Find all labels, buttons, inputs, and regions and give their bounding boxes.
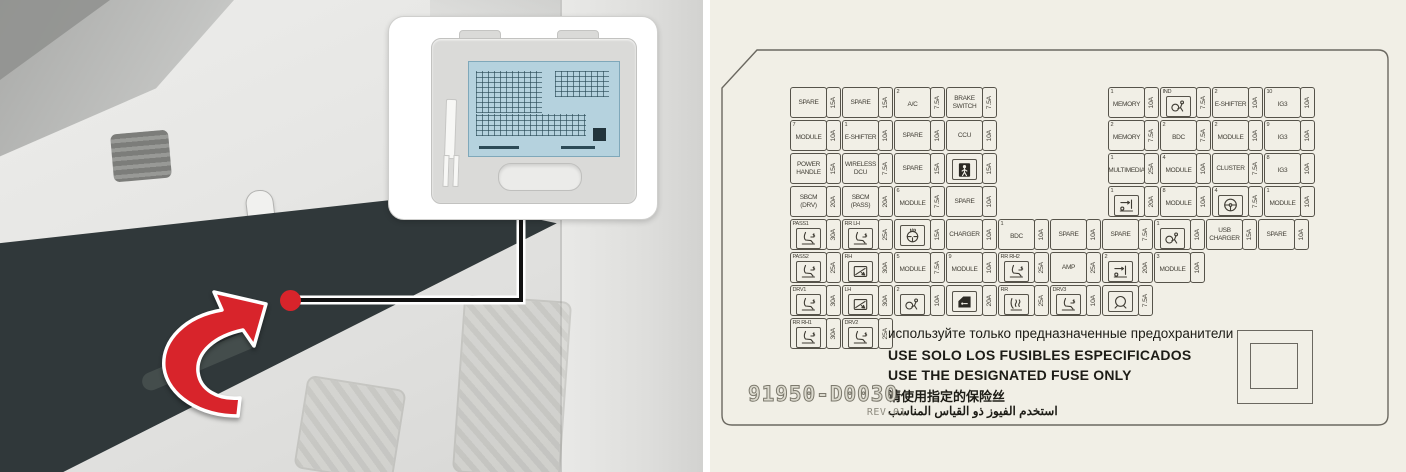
- fuse-amp-rating: 10A: [982, 186, 997, 217]
- fuse-row-segment: 120A8MODULE10A47.5A1MODULE10A: [1108, 186, 1316, 217]
- fuse-amp-rating: 20A: [1144, 186, 1159, 217]
- fuse-function-label: SPARE: [790, 87, 827, 118]
- fuse-function-label: 1MULTIMEDIA: [1108, 153, 1145, 184]
- fuse-amp-rating: 10A: [1086, 219, 1101, 250]
- fuse-index-label: PASS1: [793, 221, 809, 227]
- fuse-index-label: 1: [1267, 188, 1270, 194]
- fuse-function-label: USB CHARGER: [1206, 219, 1243, 250]
- fuse-cell: 15A: [946, 153, 997, 184]
- fuse-function-icon-cell: RR RH1: [790, 318, 827, 349]
- fuse-row-segment: 1MULTIMEDIA25A4MODULE10ACLUSTER7.5A8IG31…: [1108, 153, 1316, 184]
- fuse-puller-fork: [442, 155, 449, 187]
- fuse-index-label: 1: [1001, 221, 1004, 227]
- fuse-index-label: RR RH2: [1001, 254, 1020, 260]
- fuse-function-label: SBCM (DRV): [790, 186, 827, 217]
- fuse-cell: 2BDC7.5A: [1160, 120, 1211, 151]
- airbag-icon: [1160, 228, 1185, 249]
- fuse-function-label: 6MODULE: [894, 186, 931, 217]
- fuse-function-text: MODULE: [1159, 266, 1185, 273]
- fuse-function-icon-cell: [1102, 285, 1139, 316]
- fuse-amp-rating: 30A: [878, 252, 893, 283]
- fuse-cell: 4MODULE10A: [1160, 153, 1211, 184]
- fuse-function-text: BRAKE SWITCH: [948, 95, 981, 110]
- warning-russian: используйте только предназначенные предо…: [888, 326, 1233, 341]
- fuse-cell: 9IG310A: [1264, 120, 1315, 151]
- fuse-function-label: 2E-SHIFTER: [1212, 87, 1249, 118]
- power-seat-icon: [848, 228, 873, 249]
- fuse-cell: CCU10A: [946, 120, 997, 151]
- fuse-function-text: BDC: [1010, 233, 1023, 240]
- fuse-cell: 1BDC10A: [998, 219, 1049, 250]
- fuse-puller-fork: [452, 155, 459, 187]
- fuse-cell: 5MODULE7.5A: [894, 252, 945, 283]
- fuse-function-label: POWER HANDLE: [790, 153, 827, 184]
- mini-grid-right: [555, 71, 609, 97]
- fuse-function-text: SBCM (PASS): [844, 194, 877, 209]
- fuse-cell: SPARE15A: [790, 87, 841, 118]
- heated-seat-icon: [1004, 294, 1029, 315]
- fuse-cell: IND7.5A: [1160, 87, 1211, 118]
- fuse-cover-image: [431, 38, 637, 204]
- fuse-function-label: CLUSTER: [1212, 153, 1249, 184]
- passenger-airbag-icon: [952, 159, 977, 180]
- power-seat-icon: [848, 327, 873, 348]
- fuse-function-text: MODULE: [1269, 200, 1295, 207]
- fuse-amp-rating: 10A: [1248, 120, 1263, 151]
- fuse-cell: SBCM (PASS)20A: [842, 186, 893, 217]
- fuse-function-label: CHARGER: [946, 219, 983, 250]
- fuse-label-panel: SPARE15ASPARE15A2A/C7.5ABRAKE SWITCH7.5A…: [710, 0, 1406, 472]
- fuse-row-segment: 1MEMORY10AIND7.5A2E-SHIFTER10A10IG310A: [1108, 87, 1316, 118]
- fuse-amp-rating: 15A: [982, 153, 997, 184]
- fuse-cell: 3MODULE10A: [1154, 252, 1205, 283]
- fuse-function-text: CLUSTER: [1216, 165, 1244, 172]
- fuse-index-label: RR LH: [845, 221, 860, 227]
- fuse-amp-rating: 30A: [826, 219, 841, 250]
- fuse-amp-rating: 10A: [982, 252, 997, 283]
- fuse-amp-rating: 15A: [1242, 219, 1257, 250]
- fuse-function-text: IG3: [1278, 101, 1288, 108]
- fuse-function-icon-cell: LH: [842, 285, 879, 316]
- fuse-function-icon-cell: DRV2: [842, 318, 879, 349]
- fuse-cell: DRV130A: [790, 285, 841, 316]
- fuse-cell: WIRELESS DCU7.5A: [842, 153, 893, 184]
- fuse-row-segment: PASS225ARH30A5MODULE7.5A9MODULE10ARR RH2…: [790, 252, 1206, 283]
- door-lock-icon: [952, 291, 977, 312]
- fuse-row-segment: POWER HANDLE15AWIRELESS DCU7.5ASPARE15A1…: [790, 153, 998, 184]
- fuse-cell: 15A: [894, 219, 945, 250]
- fuse-function-label: 3MODULE: [1154, 252, 1191, 283]
- fuse-index-label: 2: [1163, 122, 1166, 128]
- fuse-function-icon-cell: [946, 285, 983, 316]
- fuse-amp-rating: 10A: [1034, 219, 1049, 250]
- fuse-amp-rating: 7.5A: [1144, 120, 1159, 151]
- power-seat-icon: [1004, 261, 1029, 282]
- fuse-function-icon-cell: 1: [1154, 219, 1191, 250]
- fuse-index-label: DRV2: [845, 320, 859, 326]
- fuse-amp-rating: 25A: [1086, 252, 1101, 283]
- fuse-cell: RR RH130A: [790, 318, 841, 349]
- fuse-function-label: SPARE: [842, 87, 879, 118]
- fuse-cell: RR LH25A: [842, 219, 893, 250]
- fuse-function-label: 8MODULE: [1160, 186, 1197, 217]
- fuse-index-label: 5: [897, 254, 900, 260]
- fuse-function-text: MODULE: [1217, 134, 1243, 141]
- fuse-cell: 7MODULE10A: [790, 120, 841, 151]
- fuse-function-icon-cell: 2: [1102, 252, 1139, 283]
- fuse-cell: SPARE15A: [894, 153, 945, 184]
- fuse-function-label: 7MODULE: [790, 120, 827, 151]
- fuse-function-icon-cell: [894, 219, 931, 250]
- fuse-amp-rating: 25A: [878, 219, 893, 250]
- fuse-function-label: 9MODULE: [946, 252, 983, 283]
- fuse-amp-rating: 15A: [826, 87, 841, 118]
- fuse-function-text: SPARE: [954, 198, 974, 205]
- fuse-function-label: SPARE: [1102, 219, 1139, 250]
- fuse-function-text: CHARGER: [949, 231, 979, 238]
- fuse-amp-rating: 10A: [1144, 87, 1159, 118]
- fuse-amp-rating: 7.5A: [930, 87, 945, 118]
- fuse-cell: PASS225A: [790, 252, 841, 283]
- fuse-cell: 8MODULE10A: [1160, 186, 1211, 217]
- fuse-function-icon-cell: DRV3: [1050, 285, 1087, 316]
- fuse-amp-rating: 10A: [930, 120, 945, 151]
- fuse-function-label: SPARE: [894, 120, 931, 151]
- fuse-function-label: BRAKE SWITCH: [946, 87, 983, 118]
- fuse-function-text: MODULE: [951, 266, 977, 273]
- fuse-amp-rating: 7.5A: [930, 186, 945, 217]
- mini-grid-bottom: [476, 114, 586, 136]
- fuse-cell: RR25A: [998, 285, 1049, 316]
- fuse-index-label: 9: [1267, 122, 1270, 128]
- part-number: 91950-D0030: [748, 382, 898, 406]
- fuse-function-text: SPARE: [1110, 231, 1130, 238]
- fuse-index-label: DRV1: [793, 287, 807, 293]
- fuse-cell: 6MODULE7.5A: [894, 186, 945, 217]
- fuse-amp-rating: 10A: [930, 285, 945, 316]
- fuse-function-label: 2BDC: [1160, 120, 1197, 151]
- fuse-index-label: 6: [897, 188, 900, 194]
- fuse-function-text: MEMORY: [1113, 134, 1140, 141]
- fuse-function-text: SPARE: [902, 165, 922, 172]
- fuse-function-text: USB CHARGER: [1208, 227, 1241, 242]
- cover-handle-slot: [498, 163, 582, 191]
- fuse-row-segment: 7MODULE10A1E-SHIFTER10ASPARE10ACCU10A: [790, 120, 998, 151]
- fuse-function-text: POWER HANDLE: [792, 161, 825, 176]
- fuse-cell: CLUSTER7.5A: [1212, 153, 1263, 184]
- fuse-amp-rating: 20A: [878, 186, 893, 217]
- fuse-amp-rating: 20A: [826, 186, 841, 217]
- fuse-cell: 1E-SHIFTER10A: [842, 120, 893, 151]
- fuse-cell: SPARE10A: [946, 186, 997, 217]
- fuse-index-label: DRV3: [1053, 287, 1067, 293]
- fuse-cell: 10IG310A: [1264, 87, 1315, 118]
- fuse-amp-rating: 10A: [1190, 252, 1205, 283]
- fuse-amp-rating: 7.5A: [930, 252, 945, 283]
- fuse-row-segment: PASS130ARR LH25A15ACHARGER10A1BDC10ASPAR…: [790, 219, 1310, 250]
- fuse-function-icon-cell: 1: [1108, 186, 1145, 217]
- fuse-function-text: MEMORY: [1113, 101, 1140, 108]
- fuse-amp-rating: 25A: [1034, 285, 1049, 316]
- fuse-cell: SPARE10A: [1258, 219, 1309, 250]
- fuse-function-text: SBCM (DRV): [792, 194, 825, 209]
- fuse-index-label: IND: [1163, 89, 1172, 95]
- steering-wheel-icon: [1218, 195, 1243, 216]
- fuse-index-label: 9: [949, 254, 952, 260]
- fuse-cell: 2A/C7.5A: [894, 87, 945, 118]
- corner-square-inner: [1250, 343, 1298, 389]
- fuse-cell: 1MODULE10A: [1264, 186, 1315, 217]
- fuse-amp-rating: 10A: [982, 219, 997, 250]
- fuse-cell: 2MEMORY7.5A: [1108, 120, 1159, 151]
- warning-english: USE THE DESIGNATED FUSE ONLY: [888, 367, 1132, 383]
- fuse-function-label: CCU: [946, 120, 983, 151]
- fuse-function-text: MODULE: [1165, 200, 1191, 207]
- fuse-amp-rating: 25A: [1034, 252, 1049, 283]
- fuse-amp-rating: 7.5A: [1248, 186, 1263, 217]
- fuse-function-label: 1MODULE: [1264, 186, 1301, 217]
- fuse-amp-rating: 10A: [982, 120, 997, 151]
- mini-grid-left: [476, 71, 542, 113]
- fuse-function-text: CCU: [958, 132, 971, 139]
- fuse-function-label: SBCM (PASS): [842, 186, 879, 217]
- fuse-row-segment: 2MEMORY7.5A2BDC7.5A2MODULE10A9IG310A: [1108, 120, 1316, 151]
- fuse-function-text: SPARE: [902, 132, 922, 139]
- fuse-cell: CHARGER10A: [946, 219, 997, 250]
- mini-text-dash: [479, 146, 519, 149]
- fuse-cell: SPARE10A: [894, 120, 945, 151]
- airbag-icon: [1166, 96, 1191, 117]
- fuse-function-label: SPARE: [1050, 219, 1087, 250]
- fuse-index-label: 8: [1267, 155, 1270, 161]
- fuse-amp-rating: 15A: [930, 219, 945, 250]
- manual-page: { "colors":{"accent_red":"#d8242b","pane…: [0, 0, 1406, 472]
- fuse-function-icon-cell: [946, 153, 983, 184]
- seat-slide-icon: [1114, 195, 1139, 216]
- power-window-icon: [848, 261, 873, 282]
- revision-label: REV.01: [818, 407, 906, 418]
- fuse-cell: 1MULTIMEDIA25A: [1108, 153, 1159, 184]
- fuse-cell: SPARE7.5A: [1102, 219, 1153, 250]
- fuse-function-text: IG3: [1278, 167, 1288, 174]
- fuse-index-label: 3: [1157, 254, 1160, 260]
- fuse-function-text: MODULE: [899, 266, 925, 273]
- fuse-function-text: SPARE: [1058, 231, 1078, 238]
- fuse-index-label: RR: [1001, 287, 1008, 293]
- fuse-function-label: 1BDC: [998, 219, 1035, 250]
- fuse-cell: RR RH225A: [998, 252, 1049, 283]
- interior-photo: [0, 0, 703, 472]
- fuse-index-label: 2: [897, 89, 900, 95]
- fuse-cell: 2E-SHIFTER10A: [1212, 87, 1263, 118]
- fuse-function-text: SPARE: [850, 99, 870, 106]
- fuse-amp-rating: 10A: [826, 120, 841, 151]
- fuse-row-segment: DRV130ALH30A210A20ARR25ADRV310A7.5A: [790, 285, 1154, 316]
- fuse-amp-rating: 10A: [1300, 186, 1315, 217]
- fuse-index-label: 8: [1163, 188, 1166, 194]
- fuse-amp-rating: 7.5A: [982, 87, 997, 118]
- fuse-amp-rating: 25A: [1144, 153, 1159, 184]
- fuse-cell: BRAKE SWITCH7.5A: [946, 87, 997, 118]
- fuse-function-icon-cell: RR: [998, 285, 1035, 316]
- fuse-amp-rating: 10A: [878, 120, 893, 151]
- fuse-function-label: SPARE: [894, 153, 931, 184]
- fuse-function-text: BDC: [1172, 134, 1185, 141]
- fuse-function-icon-cell: 4: [1212, 186, 1249, 217]
- fuse-index-label: 1: [1111, 89, 1114, 95]
- callout-box: [388, 16, 658, 220]
- fuse-cell: USB CHARGER15A: [1206, 219, 1257, 250]
- fuse-function-label: 10IG3: [1264, 87, 1301, 118]
- power-seat-icon: [796, 327, 821, 348]
- fuse-function-text: MODULE: [899, 200, 925, 207]
- fuse-cell: LH30A: [842, 285, 893, 316]
- fuse-index-label: 1: [1111, 155, 1114, 161]
- fuse-function-text: IG3: [1278, 134, 1288, 141]
- fuse-cell: 2MODULE10A: [1212, 120, 1263, 151]
- fuse-function-icon-cell: IND: [1160, 87, 1197, 118]
- fuse-function-label: 1MEMORY: [1108, 87, 1145, 118]
- fuse-cell: DRV310A: [1050, 285, 1101, 316]
- warning-spanish: USE SOLO LOS FUSIBLES ESPECIFICADOS: [888, 347, 1191, 363]
- fuse-function-icon-cell: PASS1: [790, 219, 827, 250]
- fuse-index-label: 2: [1105, 254, 1108, 260]
- fuse-cell: SPARE10A: [1050, 219, 1101, 250]
- fuse-function-icon-cell: PASS2: [790, 252, 827, 283]
- fuse-amp-rating: 7.5A: [1196, 87, 1211, 118]
- fuse-function-text: MODULE: [795, 134, 821, 141]
- fuse-amp-rating: 10A: [1086, 285, 1101, 316]
- fuse-function-label: 4MODULE: [1160, 153, 1197, 184]
- power-window-icon: [848, 294, 873, 315]
- fuse-function-label: 2A/C: [894, 87, 931, 118]
- fuse-amp-rating: 15A: [826, 153, 841, 184]
- fuse-cell: DRV225A: [842, 318, 893, 349]
- fuse-amp-rating: 7.5A: [1138, 219, 1153, 250]
- fuse-cell: 210A: [894, 285, 945, 316]
- fuse-amp-rating: 10A: [1294, 219, 1309, 250]
- fuse-amp-rating: 10A: [1196, 186, 1211, 217]
- fuse-cell: 120A: [1108, 186, 1159, 217]
- power-seat-icon: [796, 261, 821, 282]
- fuse-cell: PASS130A: [790, 219, 841, 250]
- fuse-amp-rating: 10A: [1300, 87, 1315, 118]
- fuse-amp-rating: 7.5A: [1138, 285, 1153, 316]
- power-seat-icon: [1056, 294, 1081, 315]
- fuse-cell: RH30A: [842, 252, 893, 283]
- fuse-function-icon-cell: 2: [894, 285, 931, 316]
- fuse-cell: AMP25A: [1050, 252, 1101, 283]
- fuse-cell: 8IG310A: [1264, 153, 1315, 184]
- fuse-row-segment: SBCM (DRV)20ASBCM (PASS)20A6MODULE7.5ASP…: [790, 186, 998, 217]
- fuse-function-text: MULTIMEDIA: [1108, 167, 1145, 174]
- fuse-index-label: 2: [1215, 89, 1218, 95]
- fuse-row-segment: SPARE15ASPARE15A2A/C7.5ABRAKE SWITCH7.5A: [790, 87, 998, 118]
- fuse-amp-rating: 7.5A: [1248, 153, 1263, 184]
- fuse-amp-rating: 30A: [826, 318, 841, 349]
- power-seat-icon: [796, 228, 821, 249]
- fuse-index-label: 1: [1157, 221, 1160, 227]
- horn-icon: [1108, 291, 1133, 312]
- fuse-function-text: SPARE: [1266, 231, 1286, 238]
- fuse-index-label: PASS2: [793, 254, 809, 260]
- fuse-index-label: 1: [845, 122, 848, 128]
- fuse-amp-rating: 30A: [878, 285, 893, 316]
- fuse-function-label: 5MODULE: [894, 252, 931, 283]
- fuse-index-label: 4: [1215, 188, 1218, 194]
- fuse-amp-rating: 25A: [826, 252, 841, 283]
- fuse-index-label: 4: [1163, 155, 1166, 161]
- seat-slide-icon: [1108, 261, 1133, 282]
- fuse-amp-rating: 20A: [982, 285, 997, 316]
- fuse-function-label: 9IG3: [1264, 120, 1301, 151]
- fuse-cell: SPARE15A: [842, 87, 893, 118]
- fuse-index-label: RR RH1: [793, 320, 812, 326]
- fuse-function-label: AMP: [1050, 252, 1087, 283]
- fuse-function-label: 1E-SHIFTER: [842, 120, 879, 151]
- fuse-amp-rating: 20A: [1138, 252, 1153, 283]
- fuse-function-icon-cell: RH: [842, 252, 879, 283]
- warning-chinese: 请使用指定的保险丝: [888, 386, 1005, 405]
- fuse-function-text: WIRELESS DCU: [844, 161, 877, 176]
- fuse-function-text: SPARE: [798, 99, 818, 106]
- fuse-index-label: LH: [845, 287, 852, 293]
- warning-arabic: استخدم الفيوز ذو القياس المناسب: [888, 404, 1058, 418]
- fuse-index-label: RH: [845, 254, 852, 260]
- fuse-function-label: 8IG3: [1264, 153, 1301, 184]
- fuse-cell: POWER HANDLE15A: [790, 153, 841, 184]
- mini-text-dash: [561, 146, 595, 149]
- fuse-function-icon-cell: RR LH: [842, 219, 879, 250]
- fuse-amp-rating: 10A: [1196, 153, 1211, 184]
- fuse-cell: 9MODULE10A: [946, 252, 997, 283]
- fuse-index-label: 1: [1111, 188, 1114, 194]
- fuse-index-label: 2: [897, 287, 900, 293]
- fuse-function-label: 2MODULE: [1212, 120, 1249, 151]
- fuse-cell: 110A: [1154, 219, 1205, 250]
- fuse-function-label: SPARE: [946, 186, 983, 217]
- fuse-cell: 1MEMORY10A: [1108, 87, 1159, 118]
- fuse-cell: 7.5A: [1102, 285, 1153, 316]
- fuse-amp-rating: 10A: [1248, 87, 1263, 118]
- fuse-function-label: 2MEMORY: [1108, 120, 1145, 151]
- fuse-cell: 220A: [1102, 252, 1153, 283]
- mini-barcode: [593, 128, 606, 141]
- fuse-label-mini: [468, 61, 620, 157]
- airbag-icon: [900, 294, 925, 315]
- fuse-index-label: 2: [1111, 122, 1114, 128]
- power-seat-icon: [796, 294, 821, 315]
- fuse-index-label: 7: [793, 122, 796, 128]
- fuse-amp-rating: 10A: [1300, 153, 1315, 184]
- fuse-function-icon-cell: RR RH2: [998, 252, 1035, 283]
- fuse-cell: 47.5A: [1212, 186, 1263, 217]
- fuse-amp-rating: 7.5A: [878, 153, 893, 184]
- fuse-index-label: 10: [1267, 89, 1273, 95]
- heated-steering-wheel-icon: [900, 225, 925, 246]
- fuse-function-label: SPARE: [1258, 219, 1295, 250]
- fuse-row-segment: RR RH130ADRV225A: [790, 318, 894, 349]
- fuse-amp-rating: 10A: [1190, 219, 1205, 250]
- fuse-function-text: MODULE: [1165, 167, 1191, 174]
- fuse-cell: 20A: [946, 285, 997, 316]
- fuse-amp-rating: 7.5A: [1196, 120, 1211, 151]
- fuse-amp-rating: 15A: [930, 153, 945, 184]
- fuse-function-label: WIRELESS DCU: [842, 153, 879, 184]
- fuse-function-text: E-SHIFTER: [1215, 101, 1247, 108]
- fuse-function-text: AMP: [1062, 264, 1075, 271]
- fuse-function-icon-cell: DRV1: [790, 285, 827, 316]
